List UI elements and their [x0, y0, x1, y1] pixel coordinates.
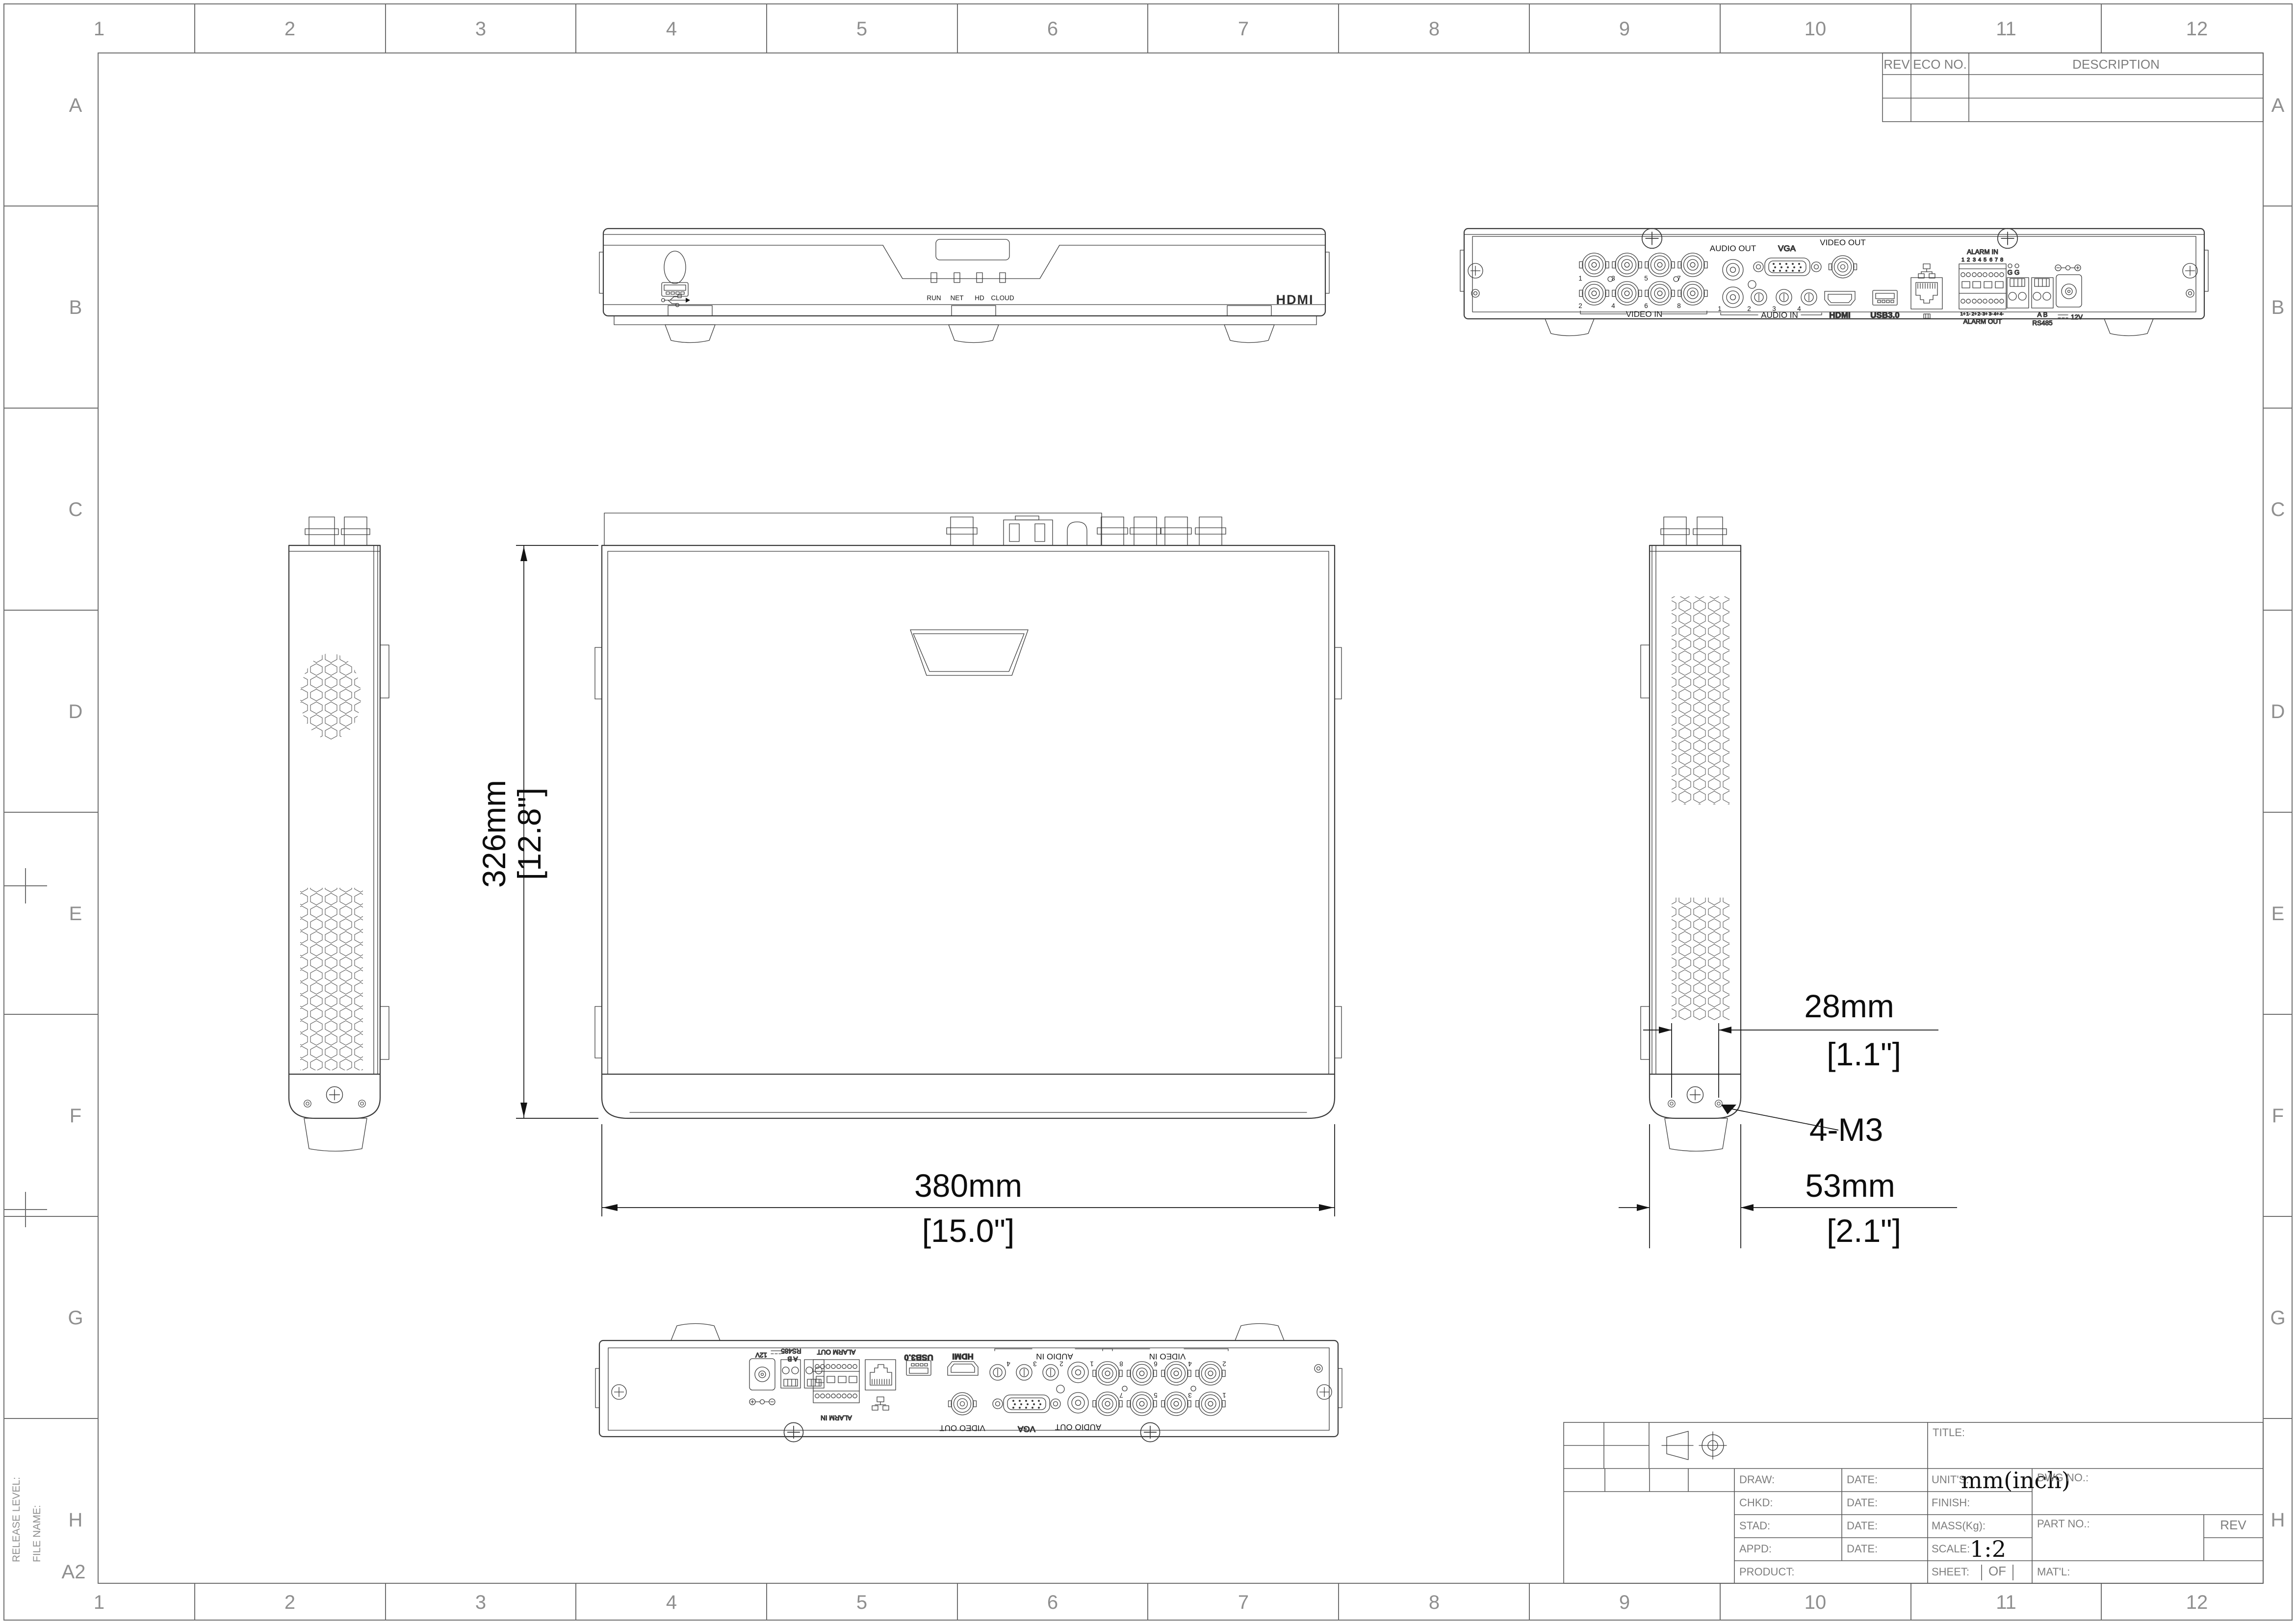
front-feet	[665, 306, 1274, 343]
matl-label: MAT'L:	[2037, 1566, 2070, 1578]
audio-group: AUDIO IN 4 3 2 1 AUDIO OUT	[990, 1349, 1112, 1432]
rca-connector	[1068, 1362, 1088, 1383]
revision-rev-header: REV	[1883, 57, 1910, 72]
column-label: 12	[2186, 1592, 2208, 1613]
row-label: G	[2270, 1307, 2285, 1329]
pin-label: 4-	[2000, 311, 2004, 317]
vga-port: VGA	[1754, 244, 1821, 276]
ethernet-port	[865, 1360, 896, 1410]
column-label: 7	[1238, 18, 1249, 40]
row-label: E	[69, 903, 82, 925]
side-lug	[1460, 250, 1464, 291]
video-out-label: VIDEO OUT	[939, 1423, 985, 1433]
screw-hole	[1315, 1365, 1322, 1372]
led-indicators	[931, 273, 1006, 283]
column-label: 6	[1047, 18, 1058, 40]
file-name-label: FILE NAME:	[31, 1505, 43, 1562]
screw-icon	[1687, 1087, 1703, 1103]
vent-pattern	[300, 653, 361, 740]
side-lug	[595, 1368, 599, 1408]
date-label: DATE:	[1847, 1543, 1878, 1555]
network-icon	[872, 1397, 889, 1410]
drawing-canvas: 1 2 3 4 5 6 7 8 9 10 11 12 1 2 3 4 5 6 7…	[0, 0, 2296, 1624]
date-label: DATE:	[1847, 1520, 1878, 1532]
bottom-feet	[671, 1324, 1284, 1341]
bnc-connector	[1127, 1362, 1157, 1385]
foot	[304, 1118, 367, 1151]
alarm-terminal-block: ALARM OUT ALARM IN	[813, 1348, 859, 1421]
alarm-out-label: ALARM OUT	[1963, 318, 2002, 325]
bnc-connector	[1161, 1362, 1191, 1385]
vga-port: VGA	[993, 1395, 1060, 1434]
screw-hole	[304, 1100, 311, 1107]
column-label: 11	[1996, 18, 2016, 40]
pin-label: 2+	[1972, 311, 1977, 317]
display-window	[936, 239, 1009, 260]
bnc-connector	[1829, 256, 1857, 278]
jack-number: 4	[1006, 1360, 1010, 1367]
pin-number: 8	[2000, 257, 2003, 263]
dim-depth-mm: 53mm	[1805, 1167, 1895, 1204]
release-level-label: RELEASE LEVEL:	[11, 1477, 22, 1562]
row-label: F	[70, 1105, 81, 1127]
bottom-view: 12V RS485 A B ALARM OUT ALARM IN	[595, 1324, 1342, 1442]
column-label: 3	[475, 1592, 486, 1613]
row-label: E	[2271, 903, 2285, 925]
sheet-size-label: A2	[62, 1561, 86, 1583]
pin-number: 2	[1967, 257, 1970, 263]
led-label-cloud: CLOUD	[991, 294, 1014, 302]
audio-in-label: AUDIO IN	[1036, 1352, 1073, 1361]
row-label: A	[2271, 95, 2285, 116]
dc-power-jack: 12V	[749, 1351, 781, 1405]
audio-jack	[1801, 289, 1817, 305]
audio-out-label: AUDIO OUT	[1055, 1422, 1101, 1432]
finish-label: FINISH:	[1932, 1496, 1970, 1509]
ethernet-port	[1911, 264, 1942, 318]
row-label: C	[69, 499, 83, 520]
screw-icon	[2183, 263, 2197, 278]
bnc-connector	[1196, 1392, 1225, 1416]
top-connector-profiles	[305, 517, 370, 545]
pin-number: 5	[1984, 257, 1986, 263]
bnc-connector	[1612, 253, 1642, 277]
audio-jack	[1016, 1365, 1032, 1380]
vent-pattern	[300, 888, 363, 1070]
bnc-number: 8	[1119, 1360, 1123, 1367]
video-out-label: VIDEO OUT	[1820, 238, 1866, 247]
screw-hole	[359, 1100, 365, 1107]
centering-mark	[4, 868, 47, 1227]
port-icon	[1924, 314, 1930, 318]
column-label: 10	[1805, 18, 1827, 40]
bnc-number: 4	[1188, 1360, 1192, 1367]
side-tabs	[380, 645, 389, 1059]
power-label: 12V	[755, 1351, 767, 1359]
scale-label: SCALE:	[1932, 1543, 1970, 1555]
bnc-connector	[1579, 253, 1609, 277]
column-label: 2	[284, 18, 295, 40]
video-in-group: 1 3 5 7 2 4 6 8 VIDEO IN	[1578, 253, 1707, 319]
row-label: H	[69, 1509, 83, 1531]
side-lug	[1325, 252, 1329, 293]
bnc-connector	[1678, 253, 1707, 277]
column-label: 8	[1429, 1592, 1440, 1613]
usb-label: USB3.0	[1870, 310, 1900, 320]
bnc-connector	[1612, 282, 1642, 305]
rs485-label: RS485	[2032, 319, 2052, 327]
rs485-ab-label: A B	[2037, 311, 2047, 318]
ir-window	[664, 251, 686, 284]
hdmi-port: HDMI	[1825, 291, 1855, 320]
bnc-connector	[1196, 1362, 1225, 1385]
audio-out-label: AUDIO OUT	[1710, 244, 1756, 253]
hdmi-logo: HDMI	[1276, 292, 1314, 307]
bnc-number: 3	[1188, 1392, 1192, 1399]
video-in-label: VIDEO IN	[1626, 309, 1663, 319]
dimension-height: 326mm [12.8"]	[476, 545, 598, 1118]
column-label: 4	[666, 1592, 677, 1613]
dim-height-inch: [12.8"]	[511, 788, 547, 880]
column-label: 8	[1429, 18, 1440, 40]
top-connector-profiles	[1661, 517, 1727, 545]
audio-in-label: AUDIO IN	[1761, 310, 1798, 320]
rs485-label: RS485	[781, 1347, 801, 1355]
dc-power-jack: 12V	[2055, 265, 2083, 321]
power-label: 12V	[2071, 313, 2083, 321]
row-label: D	[69, 701, 83, 722]
screw-icon	[1468, 263, 1483, 278]
row-label: F	[2272, 1105, 2284, 1127]
left-side-view	[289, 517, 389, 1151]
screw-icon	[784, 1423, 803, 1442]
row-label: B	[2271, 297, 2285, 318]
column-label: 1	[94, 1592, 104, 1613]
column-label: 4	[666, 18, 677, 40]
rca-connector	[1723, 287, 1743, 308]
jack-number: 1	[1090, 1360, 1094, 1367]
row-label: D	[2271, 701, 2285, 722]
bnc-connector	[1645, 253, 1675, 277]
revision-table: REV ECO NO. DESCRIPTION	[1883, 53, 2263, 122]
dimension-depth: 53mm [2.1"]	[1619, 1124, 1957, 1249]
pin-label: 2-	[1978, 311, 1982, 317]
rca-connector	[1068, 1392, 1088, 1413]
usb-icon	[662, 295, 691, 307]
alarm-in-label: ALARM IN	[821, 1414, 852, 1421]
draw-label: DRAW:	[1739, 1473, 1775, 1486]
dimension-width: 380mm [15.0"]	[602, 1124, 1335, 1249]
dim-width-mm: 380mm	[914, 1167, 1022, 1204]
base-plate	[614, 316, 1316, 325]
m3-hole	[1715, 1100, 1722, 1107]
bnc-connector	[1579, 282, 1609, 305]
bnc-number: 2	[1222, 1360, 1226, 1367]
dim-spacing-inch: [1.1"]	[1827, 1036, 1901, 1072]
ground-label: G G	[2008, 269, 2020, 276]
column-label: 9	[1619, 1592, 1630, 1613]
side-tabs	[1641, 645, 1650, 1059]
pin-label: 1+	[1961, 311, 1966, 317]
side-lug	[1338, 1368, 1342, 1408]
bnc-number: 1	[1578, 275, 1582, 282]
alarm-out-label: ALARM OUT	[817, 1348, 856, 1356]
bnc-number: 4	[1611, 302, 1615, 309]
front-recess	[883, 245, 1059, 279]
pin-number: 1	[1961, 257, 1964, 263]
revision-description-header: DESCRIPTION	[2072, 57, 2160, 72]
column-label: 10	[1805, 1592, 1827, 1613]
network-icon	[1918, 264, 1935, 278]
dwg-no-label: DWG NO.:	[2037, 1471, 2089, 1484]
bnc-number: 7	[1677, 275, 1681, 282]
grid-ticks	[4, 4, 2292, 1620]
bnc-number: 6	[1644, 302, 1648, 309]
row-label: A	[69, 95, 82, 116]
row-label: H	[2271, 1509, 2285, 1531]
hdmi-port: HDMI	[948, 1352, 978, 1375]
row-label: G	[68, 1307, 83, 1329]
usb-port-rear: USB3.0	[904, 1353, 933, 1375]
top-view	[595, 513, 1341, 1118]
pin-number: 4	[1978, 257, 1981, 263]
alarm-in-label: ALARM IN	[1967, 248, 1998, 256]
audio-jack	[1043, 1365, 1058, 1380]
pin-label: 3+	[1983, 311, 1988, 317]
screw-icon	[1998, 229, 2018, 249]
jack-number: 2	[1059, 1360, 1063, 1367]
audio-jack	[1751, 289, 1767, 305]
dim-height-mm: 326mm	[476, 780, 512, 888]
dim-depth-inch: [2.1"]	[1827, 1212, 1901, 1249]
column-label: 2	[284, 1592, 295, 1613]
column-labels-bottom: 1 2 3 4 5 6 7 8 9 10 11 12	[94, 1592, 2208, 1613]
projection-symbol	[1662, 1431, 1727, 1460]
bnc-connector	[1645, 282, 1675, 305]
column-label: 1	[94, 18, 104, 40]
column-label: 12	[2186, 18, 2208, 40]
column-label: 6	[1047, 1592, 1058, 1613]
m3-hole	[1668, 1100, 1675, 1107]
audio-jack	[990, 1365, 1006, 1380]
column-label: 11	[1996, 1592, 2016, 1613]
product-label: PRODUCT:	[1739, 1566, 1794, 1578]
audio-group: AUDIO OUT 1 2 3 4 AUDIO IN	[1710, 244, 1822, 320]
vga-label: VGA	[1778, 244, 1796, 253]
alarm-terminal-block: ALARM IN 1 2 3 4 5 6 7 8 1+ 1- 2+ 2- 3+ …	[1959, 248, 2006, 325]
pin-number: 3	[1973, 257, 1976, 263]
bnc-connector	[1093, 1392, 1122, 1416]
bnc-connector	[1093, 1362, 1122, 1385]
appd-label: APPD:	[1739, 1543, 1772, 1555]
row-label: C	[2271, 499, 2285, 520]
column-label: 5	[856, 1592, 867, 1613]
bnc-number: 7	[1119, 1392, 1123, 1399]
dim-width-inch: [15.0"]	[922, 1212, 1015, 1249]
top-connector-profiles	[947, 516, 1226, 545]
side-lug	[2204, 250, 2208, 291]
bnc-connector	[1678, 282, 1707, 305]
usb-port-rear: USB3.0	[1870, 290, 1900, 320]
jack-number: 2	[1747, 305, 1751, 312]
chkd-label: CHKD:	[1739, 1496, 1773, 1509]
bnc-number: 1	[1222, 1392, 1226, 1399]
bnc-number: 6	[1154, 1360, 1158, 1367]
bnc-number: 3	[1611, 275, 1615, 282]
ground-terminals: G G	[2008, 264, 2020, 276]
scale-value: 1:2	[1970, 1536, 2006, 1562]
polarity-icon	[2055, 265, 2081, 271]
pin-label: 1-	[1966, 311, 1970, 317]
column-label: 5	[856, 18, 867, 40]
rca-connector	[1723, 259, 1743, 280]
of-label: OF	[1988, 1564, 2006, 1578]
stad-label: STAD:	[1739, 1520, 1770, 1532]
jack-number: 3	[1033, 1360, 1037, 1367]
bnc-connector	[949, 1392, 977, 1415]
side-tabs	[595, 647, 1341, 1058]
column-label: 3	[475, 18, 486, 40]
dim-spacing-mm: 28mm	[1804, 988, 1894, 1024]
mass-label: MASS(Kg):	[1932, 1520, 1986, 1532]
sheet-label: SHEET:	[1932, 1566, 1969, 1578]
hdmi-label: HDMI	[952, 1352, 973, 1361]
led-label-net: NET	[951, 294, 964, 302]
front-view: RUN NET HD CLOUD HDMI	[599, 229, 1329, 343]
bnc-connector	[1161, 1392, 1191, 1416]
rs485-ab-label: A B	[787, 1355, 798, 1363]
bnc-connector	[1127, 1392, 1157, 1416]
row-label: B	[69, 297, 82, 318]
polarity-icon	[749, 1399, 775, 1405]
screw-icon	[1141, 1423, 1160, 1442]
screw-icon	[1642, 229, 1662, 249]
screw-hole	[2186, 289, 2194, 297]
screw-icon	[327, 1087, 343, 1103]
title-block: TITLE: DRAW: DATE: UNIT'S: mm(inch) DWG …	[1564, 1422, 2263, 1583]
thread-note: 4-M3	[1809, 1111, 1883, 1148]
part-no-label: PART NO.:	[2037, 1518, 2090, 1530]
date-label: DATE:	[1847, 1473, 1878, 1486]
sheet-frame: 1 2 3 4 5 6 7 8 9 10 11 12 1 2 3 4 5 6 7…	[4, 4, 2292, 1620]
rev-label: REV	[2220, 1518, 2246, 1532]
rear-view: 1 3 5 7 2 4 6 8 VIDEO IN AUDIO OUT 1 2 3…	[1460, 229, 2208, 336]
pin-label: 4+	[1994, 311, 1999, 317]
rear-flange	[604, 513, 1102, 545]
top-recess	[910, 630, 1028, 675]
led-label-run: RUN	[927, 294, 941, 302]
bnc-number: 2	[1578, 302, 1582, 309]
bnc-number: 5	[1154, 1392, 1158, 1399]
right-side-view	[1641, 517, 1741, 1151]
column-label: 9	[1619, 18, 1630, 40]
title-label: TITLE:	[1933, 1426, 1965, 1439]
jack-number: 1	[1718, 305, 1722, 312]
pin-label: 3-	[1989, 311, 1993, 317]
led-label-hd: HD	[975, 294, 984, 302]
side-lug	[599, 252, 603, 293]
dc-symbol-icon	[2058, 315, 2068, 318]
bnc-number: 8	[1677, 302, 1681, 309]
bnc-number: 5	[1644, 275, 1648, 282]
vent-pattern	[1672, 898, 1729, 1020]
screw-icon	[612, 1385, 626, 1399]
audio-jack	[1776, 289, 1792, 305]
rear-feet	[1545, 319, 2153, 336]
drawing-sheet: 1 2 3 4 5 6 7 8 9 10 11 12 1 2 3 4 5 6 7…	[0, 0, 2296, 1624]
usb-port-front	[662, 283, 688, 296]
pin-number: 6	[1989, 257, 1992, 263]
video-in-label: VIDEO IN	[1149, 1352, 1186, 1361]
foot	[1665, 1118, 1728, 1151]
vent-pattern	[1672, 596, 1729, 804]
front-bezel	[602, 1074, 1335, 1118]
video-in-group: VIDEO IN 8 6 4 2 7 5 3 1	[1093, 1349, 1228, 1416]
vga-label: VGA	[1017, 1424, 1035, 1434]
column-labels-top: 1 2 3 4 5 6 7 8 9 10 11 12	[94, 18, 2208, 40]
pin-number: 7	[1995, 257, 1998, 263]
thread-callout: 4-M3	[1721, 1105, 1883, 1148]
revision-eco-header: ECO NO.	[1913, 57, 1967, 72]
date-label: DATE:	[1847, 1496, 1878, 1509]
column-label: 7	[1238, 1592, 1249, 1613]
hdmi-label: HDMI	[1829, 310, 1850, 320]
